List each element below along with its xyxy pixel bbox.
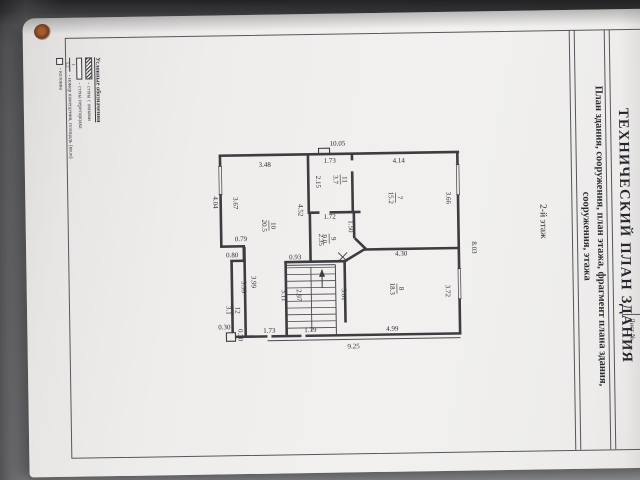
document-title: ТЕХНИЧЕСКИЙ ПЛАН ЗДАНИЯ — [608, 20, 640, 451]
svg-text:3.1: 3.1 — [224, 306, 232, 315]
stair-direction-arrow-icon — [319, 269, 325, 288]
dimension-label: 4.04 — [211, 196, 219, 209]
dimension-label: 9.25 — [347, 342, 360, 350]
dimension-label: 3.72 — [444, 285, 452, 298]
svg-text:11: 11 — [340, 176, 348, 183]
svg-text:7: 7 — [396, 196, 404, 200]
svg-text:18.3: 18.3 — [388, 283, 396, 296]
dimension-label: 10.05 — [330, 139, 346, 147]
dimension-label: 3.01 — [340, 288, 348, 301]
column-symbol-icon — [57, 58, 64, 65]
dimension-label: 1.79 — [304, 326, 317, 334]
dimension-label: 4.99 — [386, 325, 399, 333]
svg-text:15.2: 15.2 — [387, 192, 395, 205]
dimension-label: 4.30 — [395, 250, 408, 258]
dimension-label: 3.66 — [444, 192, 452, 205]
room-label: 123.1 — [224, 305, 241, 315]
dimension-label: 0.80 — [226, 251, 239, 259]
dimension-label: 2.15 — [314, 176, 322, 189]
dimension-label: 0.30 — [236, 329, 244, 342]
svg-text:10: 10 — [269, 222, 277, 230]
dimension-label: 4.14 — [393, 157, 406, 165]
dimension-label: 1.72 — [323, 213, 336, 221]
legend: Условные обозначения - стена с окнами - … — [55, 57, 105, 308]
svg-text:9.0: 9.0 — [320, 234, 328, 243]
dimension-label: 8.03 — [470, 241, 478, 254]
dimension-label: 1.73 — [324, 157, 337, 165]
document-page: ТЕХНИЧЕСКИЙ ПЛАН ЗДАНИЯ План здания, соо… — [22, 8, 640, 478]
room-number-symbol-icon: 15,2 — [64, 58, 75, 72]
dimension-label: 0.79 — [235, 235, 248, 243]
corner-column — [226, 333, 235, 342]
dimension-label: 0.30 — [218, 323, 231, 331]
dimension-label: 3.67 — [231, 197, 239, 210]
svg-text:3.7: 3.7 — [331, 175, 339, 184]
dimension-label: 3.99 — [240, 281, 248, 294]
room-label: 818.3 — [388, 282, 405, 295]
legend-item-label: - стена перегородка — [76, 83, 83, 129]
room-label: 715.2 — [387, 191, 404, 204]
room-label: 99.0 — [320, 234, 337, 244]
floor-plan: 10.053.481.734.142.154.043.673.664.521.7… — [206, 132, 480, 361]
sheet-number-box: Лист № ___ — [622, 314, 640, 358]
svg-text:20.5: 20.5 — [260, 220, 268, 233]
legend-item-label: - номер помещения, площадь (кв.м) — [67, 75, 74, 159]
dimension-label: 1.50 — [347, 220, 355, 233]
floor-label: 2-й этаж — [533, 189, 552, 253]
dimension-label: 3.48 — [259, 161, 272, 169]
svg-text:9: 9 — [329, 237, 337, 241]
partition-symbol-icon — [76, 58, 83, 80]
dimension-label: 3.11 — [280, 289, 288, 302]
dimension-label: 2.97 — [295, 289, 303, 302]
binder-spot — [34, 24, 51, 40]
svg-text:12: 12 — [233, 307, 241, 315]
dimension-label: 1.73 — [263, 327, 276, 335]
room-label: 113.7 — [331, 174, 348, 184]
dimension-label: 0.93 — [289, 253, 302, 261]
legend-item-label: - колонна — [57, 68, 63, 90]
room-label: 1020.5 — [260, 219, 277, 232]
document-subtitle-text: План здания, сооружения, план этажа, фра… — [577, 81, 609, 391]
dimension-label: 3.99 — [250, 276, 258, 289]
staircase — [286, 267, 336, 333]
legend-item-label: - стена с окнами — [86, 82, 93, 120]
photo-background: ТЕХНИЧЕСКИЙ ПЛАН ЗДАНИЯ План здания, соо… — [0, 0, 640, 480]
dimension-label: 4.52 — [296, 204, 304, 217]
svg-text:8: 8 — [397, 287, 405, 291]
wall-symbol-icon — [85, 57, 92, 79]
